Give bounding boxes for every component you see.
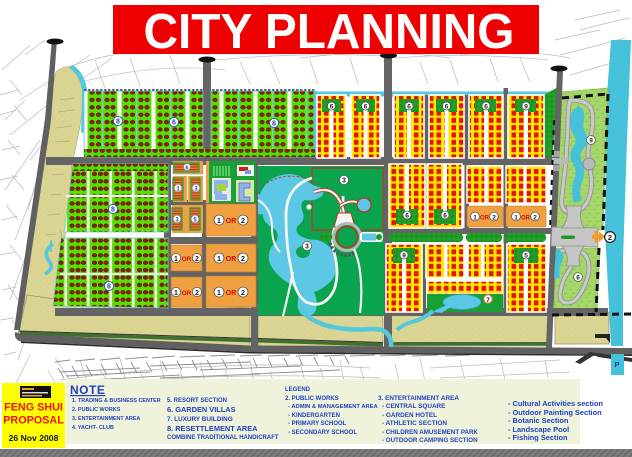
svg-text:8: 8 xyxy=(116,119,120,126)
svg-text:7. LUXURY BUILDING: 7. LUXURY BUILDING xyxy=(167,416,233,423)
svg-text:3: 3 xyxy=(342,178,346,185)
svg-text:- Fishing Section: - Fishing Section xyxy=(508,433,568,442)
svg-text:8: 8 xyxy=(111,207,115,214)
svg-text:5. RESORT SECTION: 5. RESORT SECTION xyxy=(167,398,227,404)
svg-text:P: P xyxy=(614,360,619,369)
svg-text:1. TRADING & BUSINESS CENTER: 1. TRADING & BUSINESS CENTER xyxy=(72,398,161,404)
svg-text:1: 1 xyxy=(174,256,178,263)
svg-text:6: 6 xyxy=(172,120,176,127)
svg-text:6. GARDEN VILLAS: 6. GARDEN VILLAS xyxy=(167,405,236,414)
svg-text:- Cultural Activities section: - Cultural Activities section xyxy=(508,399,603,408)
svg-text:2: 2 xyxy=(195,256,199,263)
svg-text:6: 6 xyxy=(405,213,409,220)
svg-text:- CENTRAL SQUARE: - CENTRAL SQUARE xyxy=(382,403,446,410)
svg-text:2: 2 xyxy=(241,216,245,225)
svg-text:OR: OR xyxy=(521,215,531,221)
svg-text:OR: OR xyxy=(226,290,237,297)
svg-text:1: 1 xyxy=(217,216,221,225)
svg-text:8: 8 xyxy=(107,284,111,291)
svg-text:8. RESETTLEMENT AREA: 8. RESETTLEMENT AREA xyxy=(167,424,258,433)
svg-text:9: 9 xyxy=(402,253,406,260)
svg-text:4. YACHT- CLUB: 4. YACHT- CLUB xyxy=(72,425,114,431)
svg-text:- CHILDREN AMUSEMENT PARK: - CHILDREN AMUSEMENT PARK xyxy=(382,429,478,436)
svg-text:NOTE: NOTE xyxy=(70,383,105,397)
svg-text:26 Nov 2008: 26 Nov 2008 xyxy=(9,433,59,443)
svg-text:- SECONDARY SCHOOL: - SECONDARY SCHOOL xyxy=(288,430,357,436)
svg-text:OR: OR xyxy=(480,215,490,221)
svg-text:9: 9 xyxy=(589,138,593,145)
svg-text:6: 6 xyxy=(484,104,488,111)
svg-text:6: 6 xyxy=(185,165,188,171)
svg-text:- OUTDOOR CAMPING SECTION: - OUTDOOR CAMPING SECTION xyxy=(382,437,478,444)
svg-text:7: 7 xyxy=(486,297,490,304)
svg-text:1: 1 xyxy=(217,288,221,297)
svg-text:6: 6 xyxy=(407,104,411,111)
svg-text:OR: OR xyxy=(182,290,192,297)
svg-text:- KINDERGARTEN: - KINDERGARTEN xyxy=(288,413,340,419)
svg-text:1: 1 xyxy=(217,254,221,263)
svg-text:2: 2 xyxy=(241,254,245,263)
svg-text:1: 1 xyxy=(514,214,518,221)
svg-text:- GARDEN HOTEL: - GARDEN HOTEL xyxy=(382,412,437,419)
svg-text:1: 1 xyxy=(174,290,178,297)
svg-text:OR: OR xyxy=(226,218,237,225)
svg-text:1: 1 xyxy=(473,214,477,221)
svg-text:9: 9 xyxy=(524,104,528,111)
svg-text:6: 6 xyxy=(576,275,580,282)
svg-text:OR: OR xyxy=(226,256,237,263)
svg-text:2: 2 xyxy=(608,233,612,242)
svg-text:FENG SHUI: FENG SHUI xyxy=(4,402,63,414)
svg-text:2: 2 xyxy=(492,214,496,221)
svg-text:6: 6 xyxy=(445,104,449,111)
svg-text:6: 6 xyxy=(364,104,368,111)
svg-text:2: 2 xyxy=(533,214,537,221)
svg-text:8: 8 xyxy=(272,121,276,128)
svg-text:- ADMIN & MANAGEMENT AREA: - ADMIN & MANAGEMENT AREA xyxy=(288,404,379,410)
svg-text:2: 2 xyxy=(195,290,199,297)
svg-text:2. PUBLIC WORKS: 2. PUBLIC WORKS xyxy=(285,396,339,402)
svg-text:PROPOSAL: PROPOSAL xyxy=(3,415,64,427)
svg-text:3. ENTERTAINMENT AREA: 3. ENTERTAINMENT AREA xyxy=(378,395,459,402)
svg-text:- ATHLETIC SECTION: - ATHLETIC SECTION xyxy=(382,420,447,427)
svg-text:- PRIMARY SCHOOL: - PRIMARY SCHOOL xyxy=(288,421,347,427)
svg-text:OR: OR xyxy=(182,256,192,263)
svg-text:- Botanic Section: - Botanic Section xyxy=(508,416,569,425)
svg-text:3. ENTERTAINMENT AREA: 3. ENTERTAINMENT AREA xyxy=(72,416,140,422)
svg-text:CITY PLANNING: CITY PLANNING xyxy=(144,5,515,59)
svg-text:6: 6 xyxy=(443,213,447,220)
svg-text:6: 6 xyxy=(330,104,334,111)
svg-text:2: 2 xyxy=(241,288,245,297)
svg-text:2. PUBLIC WORKS: 2. PUBLIC WORKS xyxy=(72,407,121,413)
svg-text:5: 5 xyxy=(524,253,528,260)
svg-text:COMBINE TRADITIONAL HANDICRAFT: COMBINE TRADITIONAL HANDICRAFT xyxy=(167,435,279,441)
svg-text:3: 3 xyxy=(305,244,309,251)
svg-text:LEGEND: LEGEND xyxy=(285,387,311,393)
